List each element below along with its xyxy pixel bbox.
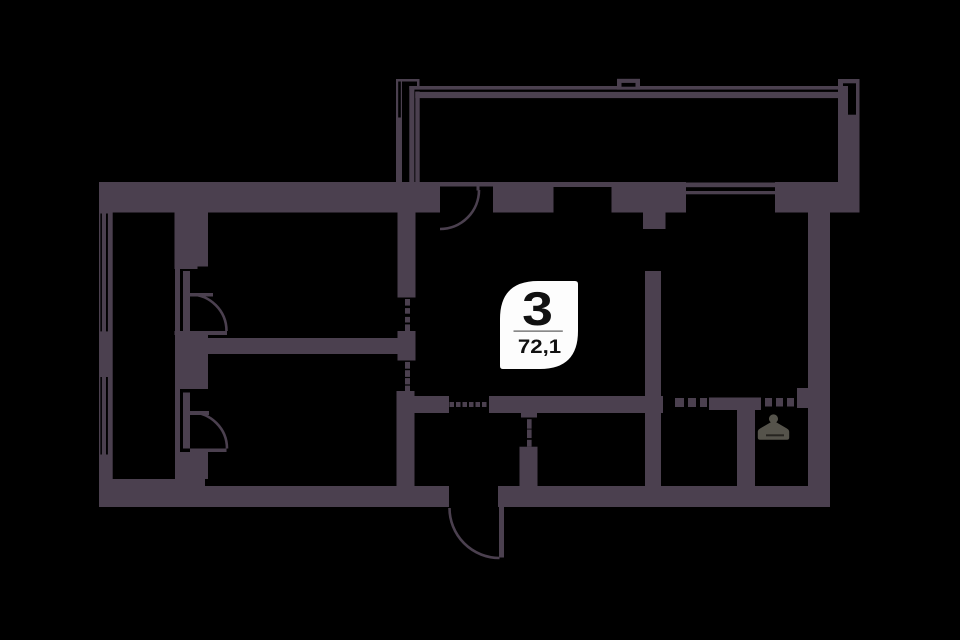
svg-text:3: 3	[522, 282, 553, 335]
svg-text:72,1: 72,1	[518, 336, 561, 357]
